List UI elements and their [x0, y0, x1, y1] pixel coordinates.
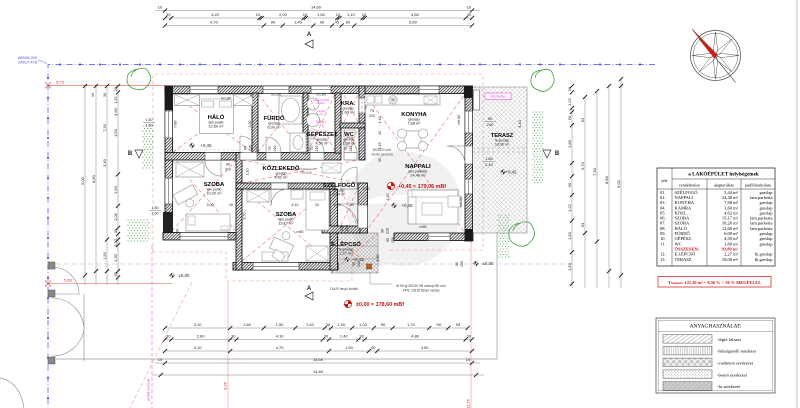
svg-text:5,60: 5,60 — [409, 19, 418, 24]
svg-text:1,45: 1,45 — [114, 97, 118, 104]
svg-text:10: 10 — [229, 203, 233, 207]
svg-text:240: 240 — [487, 122, 494, 127]
svg-text:210: 210 — [369, 114, 375, 118]
svg-text:3,10: 3,10 — [194, 322, 203, 327]
svg-text:93: 93 — [456, 322, 461, 327]
svg-text:11,76: 11,76 — [466, 398, 471, 408]
svg-text:alapterülete: alapterülete — [714, 182, 734, 187]
svg-text:10: 10 — [315, 203, 319, 207]
svg-text:1,10: 1,10 — [347, 12, 356, 17]
svg-text:11.: 11. — [660, 241, 665, 246]
svg-text:30: 30 — [378, 158, 382, 162]
svg-text:90: 90 — [381, 229, 385, 233]
svg-text:2,40: 2,40 — [485, 162, 494, 167]
svg-text:24,48 m²: 24,48 m² — [410, 173, 426, 178]
svg-text:4,80: 4,80 — [411, 12, 420, 17]
svg-text:+0,45: +0,45 — [200, 143, 212, 148]
svg-text:+0,42: +0,42 — [505, 170, 517, 175]
svg-text:3,70: 3,70 — [243, 213, 247, 220]
svg-text:150: 150 — [391, 237, 395, 243]
svg-text:4,10: 4,10 — [517, 119, 522, 128]
svg-text:1,50: 1,50 — [567, 262, 572, 271]
svg-text:1,60: 1,60 — [243, 322, 252, 327]
svg-text:210: 210 — [349, 146, 353, 152]
svg-text:A: A — [307, 286, 312, 292]
svg-text:90: 90 — [226, 163, 230, 167]
svg-text:10: 10 — [378, 131, 382, 135]
svg-text:1,80: 1,80 — [567, 139, 572, 148]
svg-text:1,50: 1,50 — [376, 255, 380, 262]
svg-text:12,60 m²: 12,60 m² — [208, 124, 224, 129]
svg-text:90: 90 — [320, 19, 325, 24]
svg-text:30: 30 — [113, 271, 118, 276]
svg-text:4,50: 4,50 — [421, 345, 430, 350]
svg-text:m90: m90 — [420, 225, 427, 229]
svg-text:10,20 m²: 10,20 m² — [206, 191, 222, 196]
svg-text:210: 210 — [225, 168, 231, 172]
svg-text:-fa szerkezet: -fa szerkezet — [717, 384, 741, 389]
svg-text:+0,45 ≈ 179,05 mBf: +0,45 ≈ 179,05 mBf — [398, 184, 446, 190]
svg-text:7,30: 7,30 — [592, 167, 597, 176]
svg-text:40: 40 — [371, 345, 376, 350]
svg-text:63: 63 — [580, 117, 585, 122]
svg-text:1,80: 1,80 — [485, 156, 494, 161]
svg-text:7,68 m²: 7,68 m² — [407, 121, 421, 126]
svg-text:40: 40 — [250, 94, 254, 98]
svg-text:15,17 m²: 15,17 m² — [278, 221, 294, 226]
svg-text:3,40: 3,40 — [386, 194, 390, 201]
svg-text:-vasbeton szerkezet: -vasbeton szerkezet — [717, 361, 754, 366]
svg-text:1,40: 1,40 — [334, 203, 341, 207]
svg-text:75: 75 — [268, 147, 272, 151]
svg-text:7,30: 7,30 — [102, 123, 107, 132]
svg-text:1,30: 1,30 — [113, 238, 118, 247]
svg-text:1,40: 1,40 — [306, 322, 315, 327]
svg-text:1,30: 1,30 — [113, 253, 118, 262]
svg-text:90: 90 — [386, 238, 390, 242]
svg-text:1,50: 1,50 — [152, 212, 159, 216]
svg-text:30: 30 — [567, 86, 572, 91]
svg-text:1,45: 1,45 — [378, 117, 382, 124]
svg-text:kiváltó gerenda: kiváltó gerenda — [371, 152, 393, 156]
svg-text:90: 90 — [567, 182, 572, 187]
svg-text:greslap: greslap — [760, 241, 774, 246]
svg-text:1,40: 1,40 — [363, 187, 370, 191]
svg-text:-tégla falazat: -tégla falazat — [717, 337, 742, 342]
svg-text:1,74: 1,74 — [407, 322, 416, 327]
svg-text:2,80: 2,80 — [197, 333, 206, 338]
svg-text:10: 10 — [466, 357, 471, 362]
svg-text:210: 210 — [315, 146, 319, 152]
svg-text:30: 30 — [359, 333, 364, 338]
svg-text:a LAKÓÉPÜLET helyiségeinek: a LAKÓÉPÜLET helyiségeinek — [688, 170, 759, 178]
svg-text:75: 75 — [370, 109, 374, 113]
svg-text:210: 210 — [386, 228, 390, 234]
svg-text:10: 10 — [336, 12, 341, 17]
svg-text:90: 90 — [455, 262, 459, 266]
svg-text:3,10: 3,10 — [194, 345, 203, 350]
svg-text:90: 90 — [567, 115, 572, 120]
svg-text:2,27 m²: 2,27 m² — [339, 251, 353, 256]
svg-text:2,00: 2,00 — [279, 12, 288, 17]
svg-text:±0,00: ±0,00 — [179, 273, 191, 278]
svg-text:A: A — [307, 32, 312, 38]
svg-text:13.: 13. — [660, 257, 666, 262]
svg-text:30: 30 — [113, 86, 118, 91]
svg-text:1,40: 1,40 — [340, 333, 349, 338]
svg-text:4,50 m²: 4,50 m² — [315, 141, 329, 146]
svg-text:1,00: 1,00 — [338, 322, 347, 327]
svg-text:10: 10 — [158, 4, 163, 9]
svg-text:30: 30 — [467, 333, 472, 338]
svg-text:14,60: 14,60 — [311, 4, 322, 9]
svg-text:B: B — [555, 151, 560, 157]
svg-text:90: 90 — [244, 146, 248, 150]
svg-text:4,20: 4,20 — [211, 12, 220, 17]
svg-text:40: 40 — [176, 229, 180, 233]
svg-text:8,80: 8,80 — [91, 174, 96, 183]
svg-text:+0,45: +0,45 — [401, 203, 413, 208]
svg-text:±0,00 = 178,60 mBf: ±0,00 = 178,60 mBf — [356, 302, 404, 308]
svg-text:1,50: 1,50 — [276, 322, 285, 327]
svg-text:1,10: 1,10 — [246, 169, 250, 176]
svg-text:30: 30 — [326, 322, 331, 327]
svg-text:4,10: 4,10 — [292, 203, 299, 207]
svg-text:10: 10 — [467, 4, 472, 9]
svg-text:10: 10 — [362, 12, 367, 17]
svg-text:30: 30 — [467, 12, 472, 17]
svg-text:1,22: 1,22 — [567, 97, 572, 106]
svg-text:m1,80: m1,80 — [316, 93, 326, 97]
svg-text:1,50: 1,50 — [146, 118, 153, 122]
svg-text:5,63: 5,63 — [64, 278, 73, 283]
svg-text:90: 90 — [436, 322, 441, 327]
svg-text:3,40: 3,40 — [102, 158, 107, 167]
svg-text:aszfalt burkolat: aszfalt burkolat — [147, 379, 151, 402]
svg-text:18,06 m²: 18,06 m² — [495, 142, 510, 146]
svg-text:8,80: 8,80 — [604, 175, 609, 184]
svg-text:30: 30 — [166, 12, 171, 17]
svg-text:m0,00: m0,00 — [459, 197, 463, 207]
svg-text:10: 10 — [256, 12, 261, 17]
svg-text:1,50: 1,50 — [317, 12, 326, 17]
svg-text:1,50: 1,50 — [102, 251, 107, 260]
svg-text:rendeltetése: rendeltetése — [679, 182, 700, 187]
svg-text:75: 75 — [310, 147, 314, 151]
svg-text:150: 150 — [357, 261, 361, 267]
svg-text:10: 10 — [158, 357, 163, 362]
svg-text:m1,80: m1,80 — [271, 93, 281, 97]
svg-text:210: 210 — [345, 225, 349, 231]
svg-text:4,80: 4,80 — [411, 333, 420, 338]
svg-text:hőszivattyú: hőszivattyú — [490, 95, 506, 99]
svg-text:5,73: 5,73 — [56, 79, 65, 84]
svg-text:ANYAGHASZNÁLAT:: ANYAGHASZNÁLAT: — [690, 322, 742, 330]
svg-text:3,00: 3,00 — [207, 203, 214, 207]
svg-text:45: 45 — [335, 19, 340, 24]
svg-text:90: 90 — [352, 262, 356, 266]
svg-text:cső: cső — [319, 113, 324, 116]
svg-text:M 90-ig 30X30 VB oszlop+50 mm: M 90-ig 30X30 VB oszlop+50 mm — [396, 284, 445, 288]
svg-text:9,00: 9,00 — [80, 176, 85, 185]
svg-text:m90: m90 — [174, 121, 178, 128]
svg-text:14,60: 14,60 — [313, 357, 324, 362]
svg-text:60: 60 — [346, 19, 351, 24]
svg-text:1,45: 1,45 — [294, 19, 303, 24]
svg-text:m1,80: m1,80 — [221, 97, 231, 101]
svg-text:6,70: 6,70 — [580, 161, 585, 170]
svg-text:1,50: 1,50 — [146, 124, 153, 128]
svg-text:1,50: 1,50 — [567, 231, 572, 240]
svg-text:24617.478: 24617.478 — [18, 60, 38, 65]
svg-text:30: 30 — [166, 333, 171, 338]
svg-text:XPS; 15x15 fenyő oszlop: XPS; 15x15 fenyő oszlop — [403, 289, 440, 293]
svg-text:BKA200 szél: BKA200 szél — [373, 148, 392, 152]
svg-text:30: 30 — [113, 228, 118, 233]
svg-text:90: 90 — [488, 116, 493, 121]
svg-text:1,50: 1,50 — [113, 185, 118, 194]
svg-text:30: 30 — [103, 93, 107, 97]
svg-text:-hőszigetelő rendszer: -hőszigetelő rendszer — [717, 349, 757, 354]
svg-text:1,90: 1,90 — [345, 345, 354, 350]
svg-text:m90: m90 — [297, 230, 304, 234]
svg-text:90: 90 — [381, 322, 386, 327]
svg-text:padlóburkolata: padlóburkolata — [745, 182, 771, 187]
svg-text:110cm,60: 110cm,60 — [300, 170, 312, 174]
svg-text:30: 30 — [324, 333, 329, 338]
svg-text:3,90: 3,90 — [113, 107, 118, 116]
svg-text:210: 210 — [273, 146, 277, 152]
svg-text:1,50: 1,50 — [152, 206, 159, 210]
svg-text:m6,00: m6,00 — [457, 115, 461, 125]
svg-text:szelep: szelep — [317, 102, 325, 105]
svg-text:210: 210 — [249, 145, 253, 151]
svg-text:4,70: 4,70 — [276, 345, 285, 350]
svg-text:3,00: 3,00 — [248, 121, 252, 128]
svg-text:6,00 m²: 6,00 m² — [267, 125, 281, 130]
svg-text:±0,00: ±0,00 — [483, 261, 495, 266]
svg-text:fk.greslap: fk.greslap — [755, 257, 774, 262]
svg-text:14,80: 14,80 — [313, 369, 324, 374]
svg-text:150: 150 — [460, 261, 464, 267]
svg-text:63: 63 — [580, 222, 585, 227]
svg-text:-beton szerkezet: -beton szerkezet — [717, 372, 748, 377]
svg-text:Tbeépített: 121,20 m² = 9,36 %: Tbeépített: 121,20 m² = 9,36 % < 30 % ME… — [668, 280, 761, 285]
svg-text:10: 10 — [91, 93, 95, 97]
svg-text:4,62 m²: 4,62 m² — [274, 175, 288, 180]
svg-text:30: 30 — [231, 333, 236, 338]
svg-text:90: 90 — [271, 19, 276, 24]
svg-text:100: 100 — [340, 225, 344, 231]
svg-text:B: B — [128, 151, 133, 157]
svg-text:TERASZ: TERASZ — [675, 257, 692, 262]
svg-text:melegvíz: melegvíz — [316, 121, 327, 124]
svg-text:9,26: 9,26 — [223, 381, 228, 390]
svg-text:1,05: 1,05 — [113, 212, 118, 221]
svg-text:5,44 m²: 5,44 m² — [332, 192, 346, 197]
svg-text:4,70: 4,70 — [210, 19, 219, 24]
svg-text:jele: jele — [660, 178, 667, 183]
svg-text:10: 10 — [303, 12, 308, 17]
svg-text:15x20 fenyő kiváltó: 15x20 fenyő kiváltó — [330, 287, 358, 291]
svg-text:1,03: 1,03 — [359, 322, 368, 327]
svg-text:1,50: 1,50 — [113, 128, 118, 137]
svg-text:1,22: 1,22 — [567, 203, 572, 212]
svg-text:9,00: 9,00 — [616, 179, 621, 188]
svg-text:4,10: 4,10 — [276, 333, 285, 338]
